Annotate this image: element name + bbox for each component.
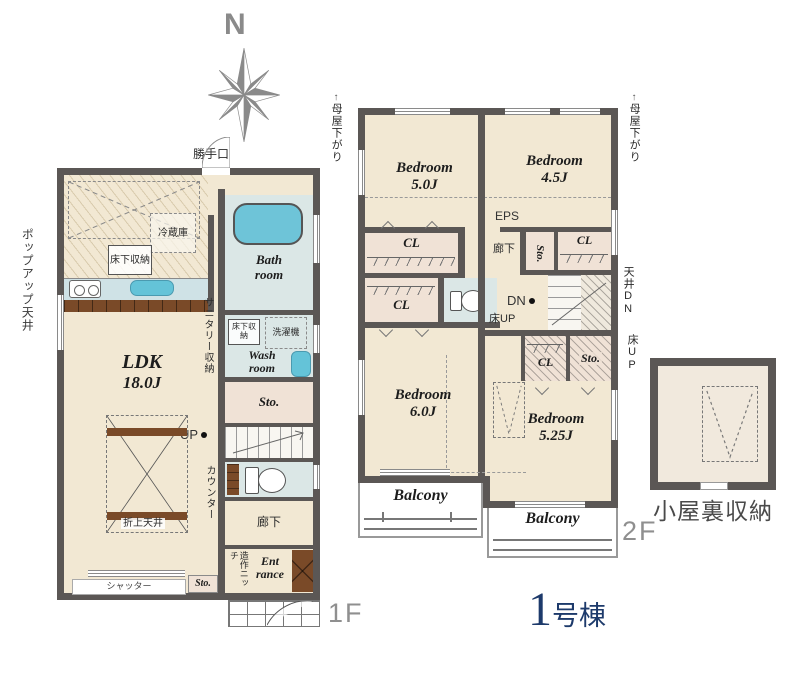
entrance-hall: 造作ニッチ Ent rance (225, 549, 313, 593)
entrance-label-line2: rance (249, 568, 291, 581)
shutter-strip: シャッター (72, 579, 186, 595)
window (358, 150, 365, 195)
arrow-up-icon: ↑ (632, 92, 637, 103)
compass-north-label: N (224, 8, 246, 42)
wall (478, 115, 485, 227)
raised-ceiling-outline: 折上天井 (106, 415, 188, 533)
hanger-rod-icon (527, 344, 563, 353)
hallway-1f: 廊下 (225, 501, 313, 545)
attic-storage-label: 小屋裏収納 (642, 492, 784, 526)
storage-room-1f: Sto. (225, 382, 313, 423)
attic-ladder-outline (702, 386, 758, 462)
bedroom1-size: 5.0J (377, 177, 472, 194)
hanger-rod-icon (560, 254, 608, 263)
back-door-gap (202, 168, 230, 175)
attic-door-gap (700, 482, 728, 490)
window (611, 210, 618, 255)
wall (218, 189, 225, 593)
moya-sagari-right-label: 母屋下がり (628, 103, 640, 195)
stairs-down-label: DN (507, 293, 526, 308)
storage-bottom-2f: Sto. (570, 336, 611, 381)
window (313, 325, 320, 353)
bath-room-label-line1: Bath (225, 253, 313, 268)
stove-icon (69, 280, 101, 298)
stairs-up-dot-icon (201, 432, 207, 438)
closet-3-label: CL (558, 234, 611, 247)
kitchen-sink-icon (130, 280, 174, 296)
attic-storage-room (650, 358, 776, 490)
toilet-tank-icon (245, 467, 259, 494)
balcony-railing (493, 539, 612, 551)
balcony-left: Balcony (358, 483, 483, 538)
ceiling-outline-dashed (446, 472, 526, 474)
hallway-1f-label: 廊下 (257, 516, 281, 529)
ladder-v-icon (703, 387, 757, 461)
closet-2-label: CL (365, 298, 438, 313)
floor-plan-2f-extension (483, 476, 618, 508)
back-door-arc-icon (202, 137, 230, 168)
bedroom2-size: 4.5J (507, 170, 602, 187)
bath-room-label-line2: room (225, 268, 313, 283)
window (57, 295, 64, 350)
closet-4: CL (525, 336, 566, 381)
storage-small-1f-label: Sto. (195, 578, 211, 589)
entrance-porch (228, 600, 320, 627)
storage-bottom-2f-label: Sto. (579, 352, 602, 365)
floor-up-right-label: 床UP (626, 334, 638, 382)
attic-ladder-outline (493, 382, 525, 438)
wall (458, 227, 465, 278)
popup-ceiling-label: ポップアップ天井 (20, 228, 33, 338)
window (88, 570, 185, 577)
window (313, 465, 320, 489)
bedroom3-size: 6.0J (373, 404, 473, 421)
floor1-label: 1F (328, 598, 364, 629)
hallway-2f-label: 廊下 (493, 243, 515, 255)
sanitary-storage-label: サニタリー収納 (202, 297, 213, 387)
refrigerator-outline: 冷蔵庫 (150, 213, 196, 253)
ceiling-outline-dashed (446, 355, 448, 473)
wash-room-label-line1: Wash (233, 349, 291, 362)
floor-plan-2f: Bedroom 5.0J Bedroom 4.5J EPS CL CL (358, 108, 618, 483)
window (380, 469, 450, 476)
closet-1: CL (365, 233, 458, 273)
floor-plan-1f: 冷蔵庫 床下収納 Bath room 床下収納 (57, 168, 320, 600)
balcony-left-label: Balcony (360, 487, 481, 505)
toilet-vanity (227, 464, 239, 495)
wash-room: 床下収納 洗濯機 Wash room (225, 315, 313, 377)
toilet-room-1f (225, 462, 313, 497)
window (395, 108, 450, 115)
storage-room-1f-label: Sto. (259, 395, 280, 410)
beam (107, 428, 187, 436)
stairs-2f (548, 275, 611, 330)
bedroom3-label: Bedroom (373, 387, 473, 404)
storage-top-2f: Sto. (526, 232, 554, 275)
folding-door-icon (581, 381, 595, 395)
building-suffix: 号棟 (552, 603, 606, 630)
moya-sagari-left-group: ↑ 母屋下がり (330, 92, 342, 195)
stairs-down-group: DN (507, 293, 535, 308)
closet-3: CL (558, 232, 611, 270)
counter-label: カウンター (204, 465, 215, 537)
ceiling-down-label: 天井DN (622, 266, 634, 330)
washing-machine-outline: 洗濯機 (265, 317, 307, 349)
building-label: 1 号棟 (528, 586, 606, 634)
closet-4-label: CL (525, 356, 566, 369)
stairs-arrow-icon (225, 427, 313, 458)
stairs-1f (225, 427, 313, 458)
storage-small-1f: Sto. (188, 575, 218, 593)
window (313, 215, 320, 263)
balcony-right: Balcony (487, 508, 618, 558)
wall (478, 227, 485, 476)
moya-sagari-right-group: ↑ 母屋下がり (628, 92, 640, 195)
bathtub-icon (233, 203, 303, 245)
railing-post (450, 512, 452, 522)
bath-room: Bath room (225, 195, 313, 310)
ldk-size-label: 18.0J (92, 373, 192, 392)
bedroom1-label: Bedroom (377, 160, 472, 177)
window (358, 360, 365, 415)
entrance-door-arc-icon (267, 601, 317, 627)
window (515, 501, 585, 508)
wash-room-label-line2: room (233, 362, 291, 375)
moya-sagari-line (365, 197, 611, 199)
storage-top-2f-label: Sto. (534, 245, 546, 262)
refrigerator-label: 冷蔵庫 (158, 228, 188, 239)
railing-post (382, 512, 384, 522)
bedroom2-label: Bedroom (507, 153, 602, 170)
floor-plan-canvas: N 勝手口 ポップアップ天井 冷蔵庫 (0, 0, 785, 682)
window (505, 108, 550, 115)
washing-machine-label: 洗濯機 (272, 328, 299, 338)
shoe-cabinet (292, 550, 313, 592)
stairs-down-dot-icon (529, 298, 535, 304)
floor-up-left-label: 床UP (489, 313, 515, 325)
ldk-label: LDK (92, 351, 192, 373)
wash-basin-icon (291, 351, 311, 377)
raised-ceiling-label: 折上天井 (121, 518, 165, 529)
entrance-label-line1: Ent (249, 555, 291, 568)
kitchen-counter-front (64, 300, 208, 312)
arrow-up-icon: ↑ (334, 92, 339, 103)
built-in-niche-label: 造作ニッチ (228, 551, 248, 593)
balcony-right-label: Balcony (489, 510, 616, 528)
window (611, 390, 618, 440)
window (560, 108, 600, 115)
stairs-arrow-icon (548, 275, 611, 330)
compass-rose-icon (198, 44, 290, 146)
moya-sagari-left-label: 母屋下がり (330, 103, 342, 195)
closet-2: CL (365, 278, 438, 322)
balcony-railing (364, 518, 477, 530)
toilet-bowl-icon (258, 468, 286, 493)
closet-1-label: CL (365, 236, 458, 251)
folding-door-icon (535, 381, 549, 395)
underfloor-storage-wash: 床下収納 (228, 319, 260, 345)
shutter-label: シャッター (106, 582, 151, 592)
building-number: 1 (528, 586, 552, 634)
hanger-rod-icon (367, 286, 435, 295)
ladder-v-icon (494, 383, 524, 437)
hanger-rod-icon (367, 257, 455, 266)
underfloor-storage-kitchen: 床下収納 (108, 245, 152, 275)
eps-label: EPS (495, 209, 519, 223)
